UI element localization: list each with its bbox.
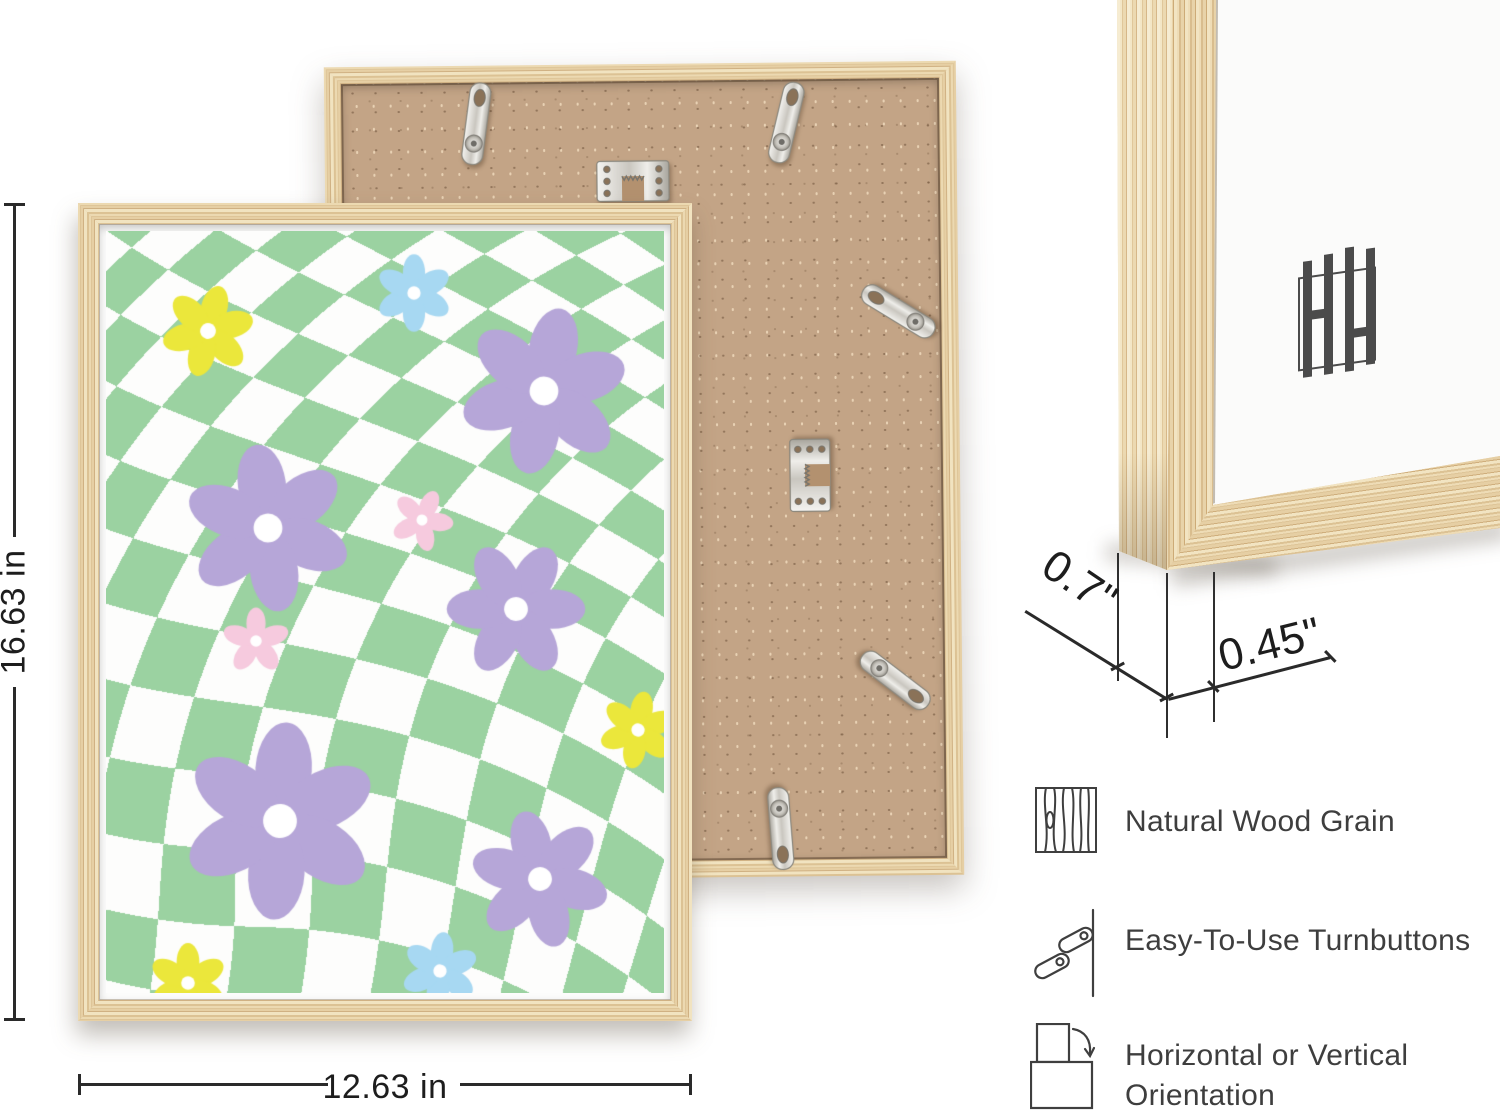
sawtooth-hardware xyxy=(789,438,832,512)
height-dimension-line xyxy=(13,687,16,1021)
height-dimension-line xyxy=(13,203,16,537)
width-dimension-label: 12.63 in xyxy=(323,1068,448,1107)
turnbutton-hardware xyxy=(762,77,811,168)
face-dimension-label: 0.45" xyxy=(1213,608,1326,682)
sawtooth-hardware xyxy=(596,160,670,203)
artwork-canvas xyxy=(106,231,664,993)
turnbutton-hardware-icon xyxy=(854,276,943,346)
width-dimension: 12.63 in xyxy=(78,1068,692,1104)
extension-line xyxy=(1213,572,1215,722)
feature-label: Horizontal or Vertical Orientation xyxy=(1125,1036,1425,1110)
product-image: 16.63 in 12.63 in 0.7" 0.45" xyxy=(0,0,1500,1110)
width-dimension-tick xyxy=(689,1074,692,1095)
turnbutton-hardware-icon xyxy=(762,77,811,168)
turnbutton-hardware xyxy=(852,642,939,718)
turnbutton-hardware xyxy=(854,276,943,346)
closeup-dimensions: 0.7" 0.45" xyxy=(1000,540,1500,740)
turnbutton-hardware-icon xyxy=(456,79,497,168)
width-dimension-tick xyxy=(78,1074,81,1095)
height-dimension-tick xyxy=(4,1018,25,1021)
width-dimension-line xyxy=(460,1083,692,1086)
turnbutton-icon xyxy=(1030,906,1102,1000)
sawtooth-hanger-icon xyxy=(596,160,670,203)
depth-dimension-label: 0.7" xyxy=(1033,540,1126,626)
turnbutton-hardware-icon xyxy=(762,785,799,873)
width-dimension-line xyxy=(78,1083,328,1086)
turnbutton-hardware xyxy=(456,79,497,168)
feature-label: Natural Wood Grain xyxy=(1125,802,1395,842)
extension-line xyxy=(1166,573,1168,738)
sawtooth-hanger-icon xyxy=(789,438,832,512)
extension-line xyxy=(1117,553,1119,681)
turnbutton-hardware-icon xyxy=(852,642,939,718)
height-dimension-tick xyxy=(4,203,25,206)
orientation-icon xyxy=(1030,1023,1096,1110)
height-dimension-label: 16.63 in xyxy=(0,550,34,675)
front-frame xyxy=(78,203,692,1021)
turnbutton-hardware xyxy=(762,785,799,873)
height-dimension: 16.63 in xyxy=(0,203,36,1021)
feature-label: Easy-To-Use Turnbuttons xyxy=(1125,921,1470,961)
wood-grain-icon xyxy=(1034,786,1098,854)
brand-logo-icon xyxy=(1293,243,1381,385)
frame-corner-closeup xyxy=(1100,0,1500,580)
